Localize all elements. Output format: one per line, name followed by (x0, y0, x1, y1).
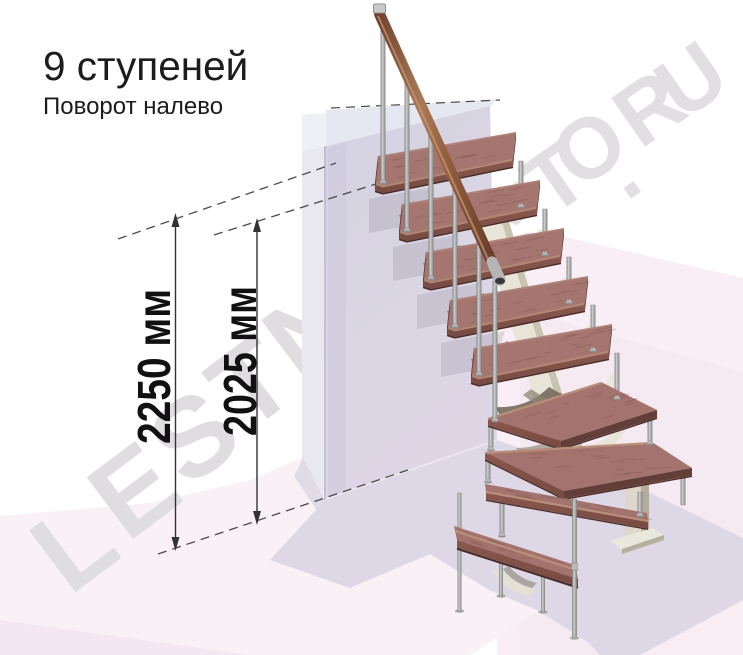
svg-text:2025 мм: 2025 мм (214, 286, 266, 436)
svg-text:2250 мм: 2250 мм (128, 289, 180, 444)
svg-text:9 ступеней: 9 ступеней (43, 43, 248, 89)
svg-text:Поворот налево: Поворот налево (43, 93, 223, 120)
